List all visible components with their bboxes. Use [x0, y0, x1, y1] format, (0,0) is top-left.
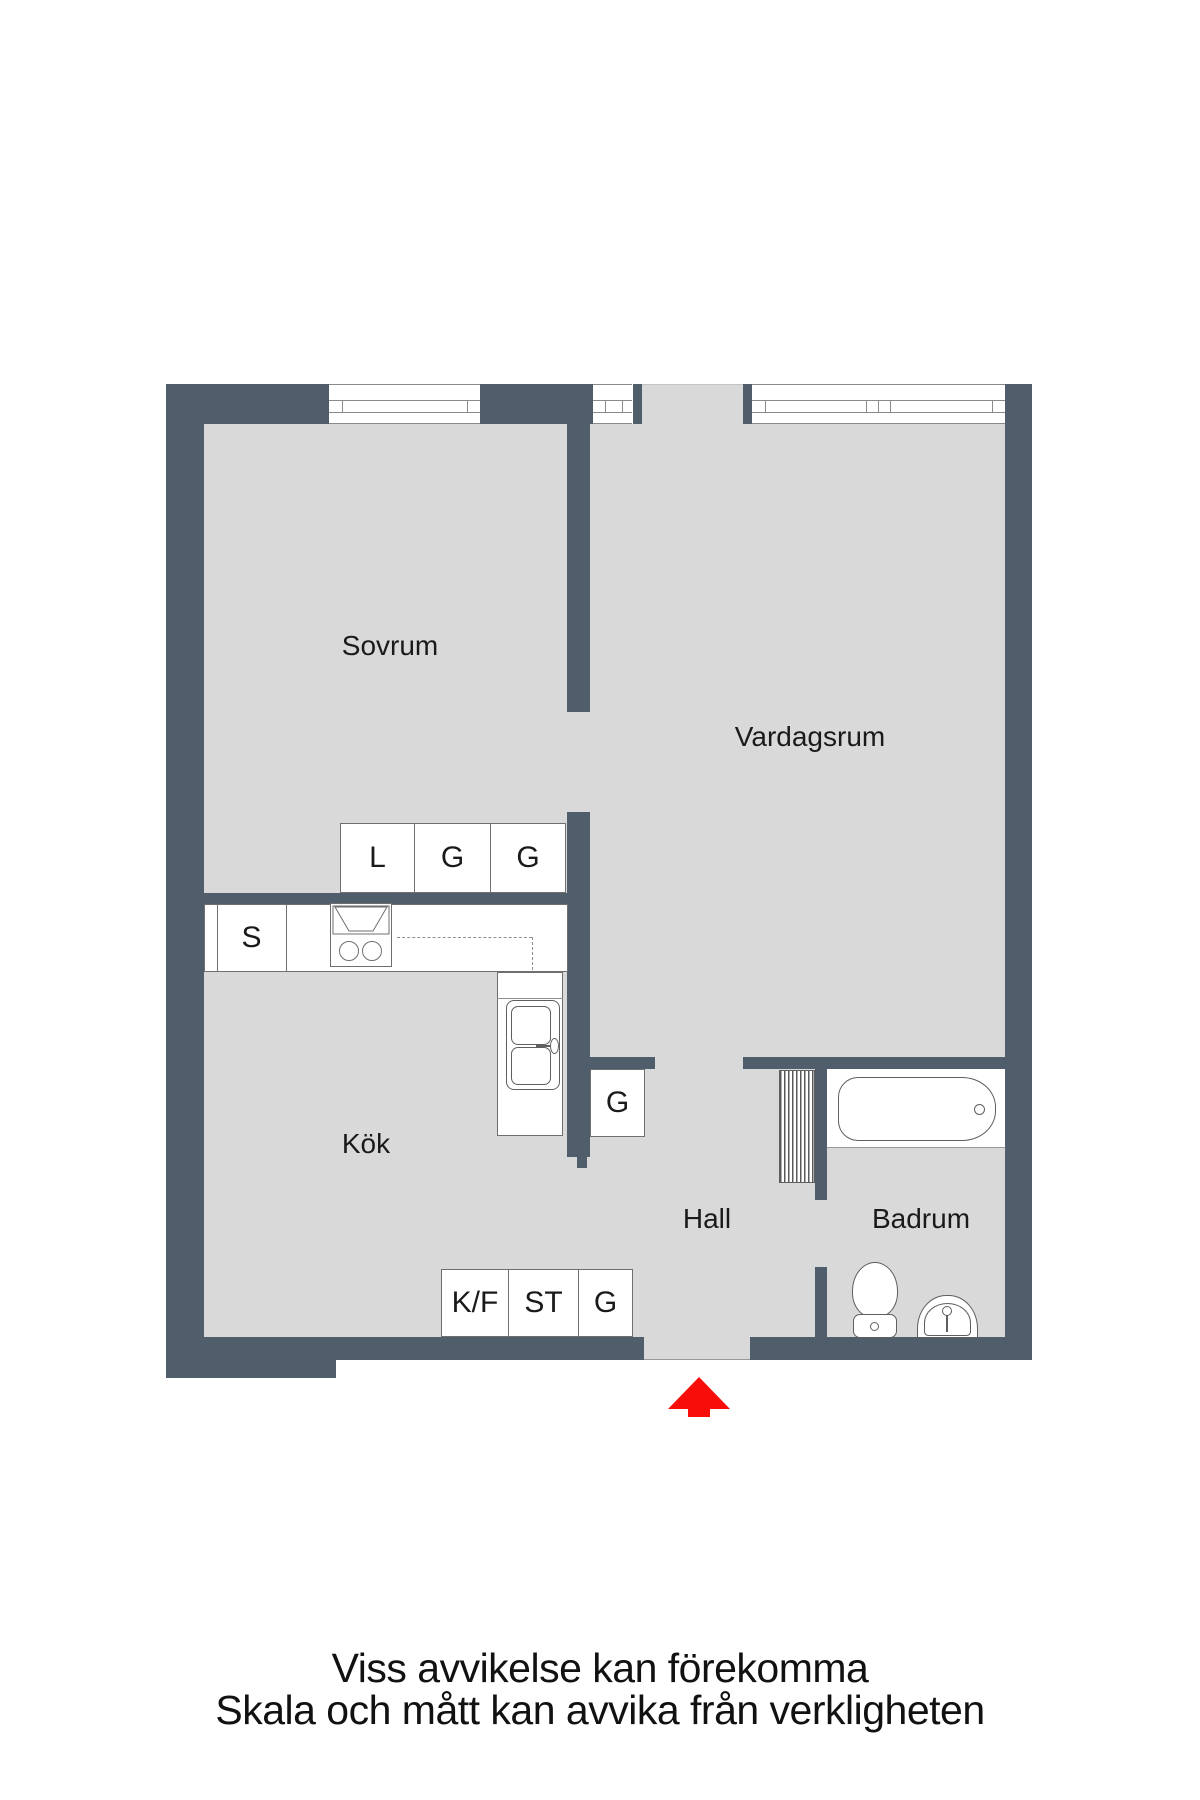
- wall-kok-hall-stub: [577, 1157, 587, 1168]
- wall-kok-hall: [567, 812, 590, 1157]
- window-vardagsrum: [752, 384, 1005, 424]
- cabinet-s: S: [217, 904, 286, 972]
- upper-cabinet-dashed-line-h: [397, 937, 532, 938]
- closet-g1: G: [414, 823, 491, 893]
- kitchen-sink-basin-bottom: [511, 1047, 551, 1085]
- stove-hood-icon: [332, 905, 390, 935]
- disclaimer-line-2: Skala och mått kan avvika från verklighe…: [0, 1687, 1200, 1734]
- entry-cabinet-g: G: [578, 1269, 633, 1337]
- apartment-floor: [204, 424, 1005, 1337]
- closet-l-label: L: [369, 841, 386, 875]
- bathroom-faucet-knob-icon: [942, 1306, 952, 1316]
- room-label-hall: Hall: [683, 1203, 731, 1235]
- closet-g1-label: G: [441, 841, 464, 875]
- room-label-badrum: Badrum: [872, 1203, 970, 1235]
- entry-cabinet-kf-label: K/F: [452, 1286, 499, 1320]
- kitchen-sink-basin-top: [511, 1006, 551, 1045]
- sliding-door: [779, 1070, 815, 1183]
- toilet-flush-icon: [870, 1322, 879, 1331]
- hall-cabinet-g: G: [590, 1069, 645, 1137]
- kitchen-faucet-knob-icon: [550, 1038, 559, 1054]
- room-label-sovrum: Sovrum: [342, 630, 438, 662]
- disclaimer-line-1: Viss avvikelse kan förekomma: [0, 1645, 1200, 1692]
- wall-right: [1005, 384, 1032, 1360]
- top-wall-recess: [642, 384, 743, 424]
- wall-hall-top: [590, 1057, 655, 1069]
- closet-g2: G: [490, 823, 566, 893]
- window-sovrum: [329, 384, 480, 424]
- wall-sovrum-vardagsrum-upper: [567, 424, 590, 712]
- bathroom-faucet-stem-icon: [946, 1314, 948, 1332]
- wall-bottom-left-jut: [166, 1337, 336, 1378]
- stove-burner-left-icon: [339, 941, 359, 961]
- entrance-arrow-icon: [668, 1377, 730, 1409]
- counter-separator-2: [286, 904, 287, 972]
- wall-badrum-left-lower: [815, 1267, 827, 1337]
- floorplan-page: L G G S G K/F ST G Sovrum Vardagsrum Kök: [0, 0, 1200, 1800]
- entry-cabinet-kf: K/F: [441, 1269, 509, 1337]
- entrance-doorway: [644, 1337, 750, 1360]
- stove-burner-right-icon: [362, 941, 382, 961]
- wall-top-pillar-1: [633, 384, 642, 424]
- entrance-arrow-stem-icon: [688, 1408, 710, 1417]
- sink-counter-separator: [497, 998, 563, 999]
- wall-left: [166, 384, 204, 1360]
- entry-cabinet-st-label: ST: [524, 1286, 562, 1320]
- room-label-vardagsrum: Vardagsrum: [735, 721, 885, 753]
- wall-badrum-top: [743, 1057, 1005, 1069]
- wall-badrum-left-upper: [815, 1069, 827, 1200]
- closet-g2-label: G: [516, 841, 539, 875]
- bathtub: [838, 1077, 996, 1141]
- bathtub-drain-icon: [974, 1104, 985, 1115]
- toilet-bowl: [852, 1262, 898, 1318]
- entry-cabinet-st: ST: [508, 1269, 579, 1337]
- hall-cabinet-g-label: G: [606, 1086, 629, 1120]
- closet-l: L: [340, 823, 415, 893]
- cabinet-s-label: S: [241, 921, 261, 955]
- window-small: [593, 384, 632, 424]
- wall-top-pillar-2: [743, 384, 752, 424]
- wall-top-b: [480, 384, 593, 424]
- entry-cabinet-g-label: G: [594, 1286, 617, 1320]
- room-label-kok: Kök: [342, 1128, 390, 1160]
